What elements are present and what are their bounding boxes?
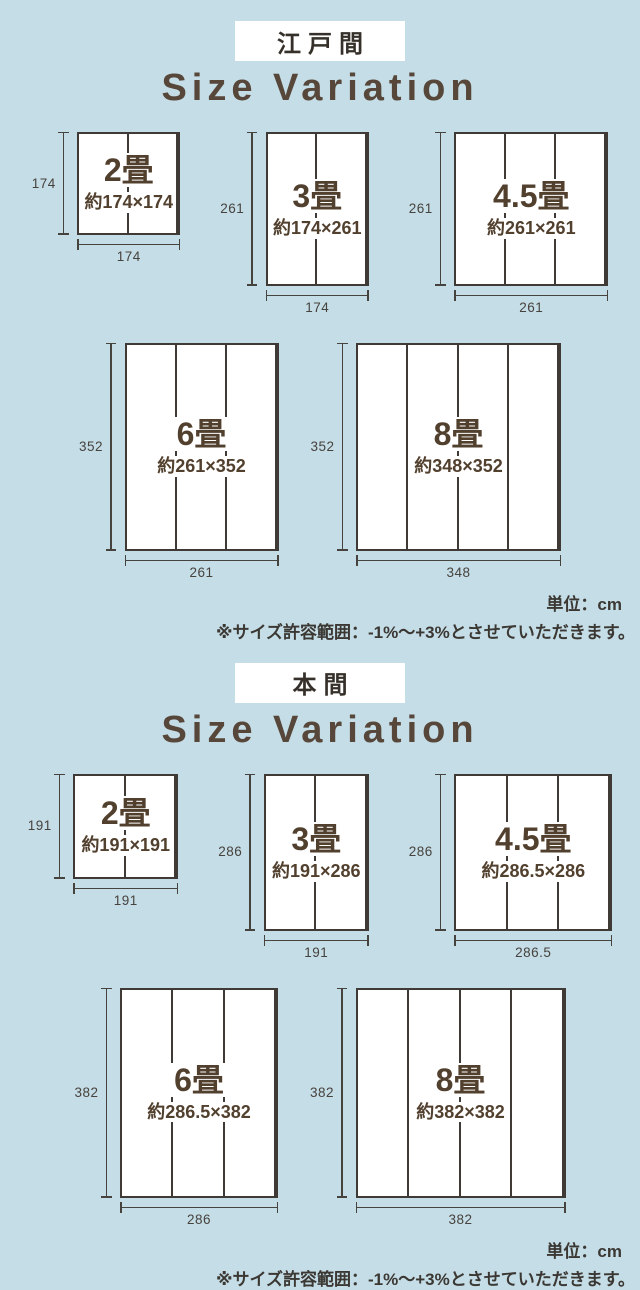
- figure-stack: 6畳約261×352261: [125, 343, 279, 580]
- size-row-large: 3526畳約261×3522613528畳約348×352348: [0, 343, 640, 580]
- size-row-large: 3826畳約286.5×3822863828畳約382×382382: [0, 988, 640, 1227]
- height-dimension: 352: [79, 343, 112, 551]
- height-dimension: 174: [32, 132, 65, 235]
- height-dimension: 286: [409, 774, 442, 931]
- height-dimension-label: 174: [32, 177, 56, 191]
- rug-rectangle: 4.5畳約261×261: [454, 132, 608, 286]
- rug-rectangle: 2畳約191×191: [73, 774, 178, 879]
- size-dimensions-text: 約382×382: [413, 1102, 508, 1123]
- size-name: 4.5畳: [490, 822, 577, 856]
- size-dimensions-text: 約286.5×286: [479, 861, 589, 882]
- tolerance-note: ※サイズ許容範囲：-1%～+3%とさせていただきます。: [0, 1265, 640, 1290]
- size-figure: 3828畳約382×382382: [310, 988, 566, 1227]
- width-dimension-label: 286.5: [515, 946, 551, 960]
- rug-rectangle: 3畳約174×261: [266, 132, 369, 286]
- height-dimension: 261: [220, 132, 253, 286]
- width-dimension-line: [454, 295, 608, 297]
- figure-stack: 8畳約348×352348: [356, 343, 561, 580]
- height-dimension-line: [110, 343, 112, 551]
- rug-labels: 6畳約261×352: [127, 345, 277, 549]
- height-dimension-label: 191: [28, 819, 52, 833]
- figure-stack: 4.5畳約261×261261: [454, 132, 608, 315]
- size-figure: 1742畳約174×174174: [32, 132, 181, 264]
- width-dimension-label: 174: [305, 301, 329, 315]
- size-figure: 3526畳約261×352261: [79, 343, 279, 580]
- size-name: 2畳: [96, 796, 156, 830]
- rug-labels: 3畳約191×286: [266, 776, 367, 929]
- width-dimension-label: 382: [449, 1213, 473, 1227]
- figure-stack: 2畳約174×174174: [77, 132, 180, 264]
- size-name: 8畳: [431, 1063, 491, 1097]
- height-dimension-line: [63, 132, 65, 235]
- height-dimension: 382: [310, 988, 343, 1198]
- size-figure: 1912畳約191×191191: [28, 774, 179, 908]
- height-dimension: 261: [409, 132, 442, 286]
- rug-rectangle: 6畳約286.5×382: [120, 988, 278, 1198]
- size-dimensions-text: 約261×352: [154, 456, 249, 477]
- height-dimension-line: [440, 132, 442, 286]
- width-dimension-label: 191: [304, 946, 328, 960]
- size-figure: 2863畳約191×286191: [218, 774, 369, 960]
- standard-tag-box: 本間: [235, 663, 405, 703]
- size-dimensions-text: 約174×174: [81, 192, 176, 213]
- width-dimension-label: 174: [117, 250, 141, 264]
- size-figure: 2864.5畳約286.5×286286.5: [409, 774, 613, 960]
- height-dimension-line: [251, 132, 253, 286]
- height-dimension-line: [440, 774, 442, 931]
- section-title: Size Variation: [0, 710, 640, 752]
- unit-note: 単位：cm: [0, 590, 640, 615]
- size-name: 3畳: [287, 179, 347, 213]
- rug-labels: 4.5畳約261×261: [456, 134, 606, 284]
- height-dimension: 191: [28, 774, 61, 879]
- unit-note: 単位：cm: [0, 1237, 640, 1262]
- size-row-small: 1742畳約174×1741742613畳約174×2611742614.5畳約…: [0, 132, 640, 315]
- height-dimension-label: 382: [310, 1086, 334, 1100]
- height-dimension-label: 286: [218, 845, 242, 859]
- rug-rectangle: 8畳約382×382: [356, 988, 566, 1198]
- rug-labels: 6畳約286.5×382: [122, 990, 276, 1196]
- width-dimension-line: [454, 940, 612, 942]
- size-name: 8畳: [429, 417, 489, 451]
- size-figure: 3826畳約286.5×382286: [74, 988, 278, 1227]
- section-honma: 本間 Size Variation 1912畳約191×1911912863畳約…: [0, 663, 640, 1290]
- height-dimension-label: 352: [311, 440, 335, 454]
- width-dimension-line: [264, 940, 369, 942]
- width-dimension-line: [120, 1207, 278, 1209]
- height-dimension-line: [341, 988, 343, 1198]
- size-figure: 2613畳約174×261174: [220, 132, 369, 315]
- figure-stack: 6畳約286.5×382286: [120, 988, 278, 1227]
- height-dimension: 352: [311, 343, 344, 551]
- section-title: Size Variation: [0, 68, 640, 110]
- standard-tag-label: 本間: [286, 665, 355, 700]
- size-dimensions-text: 約191×286: [269, 861, 364, 882]
- height-dimension-label: 261: [409, 202, 433, 216]
- width-dimension-line: [125, 560, 279, 562]
- figure-stack: 3畳約191×286191: [264, 774, 369, 960]
- height-dimension-line: [249, 774, 251, 931]
- figure-stack: 4.5畳約286.5×286286.5: [454, 774, 612, 960]
- height-dimension-label: 352: [79, 440, 103, 454]
- figure-stack: 2畳約191×191191: [73, 774, 178, 908]
- width-dimension-label: 261: [519, 301, 543, 315]
- size-figure: 2614.5畳約261×261261: [409, 132, 609, 315]
- width-dimension-label: 261: [189, 566, 213, 580]
- rug-labels: 8畳約348×352: [358, 345, 559, 549]
- size-dimensions-text: 約348×352: [411, 456, 506, 477]
- width-dimension-line: [356, 1207, 566, 1209]
- size-dimensions-text: 約174×261: [270, 218, 365, 239]
- height-dimension-label: 261: [220, 202, 244, 216]
- size-row-small: 1912畳約191×1911912863畳約191×2861912864.5畳約…: [0, 774, 640, 960]
- height-dimension-label: 286: [409, 845, 433, 859]
- figure-stack: 8畳約382×382382: [356, 988, 566, 1227]
- size-dimensions-text: 約261×261: [484, 218, 579, 239]
- rug-rectangle: 3畳約191×286: [264, 774, 369, 931]
- size-name: 2畳: [99, 153, 159, 187]
- size-name: 4.5畳: [488, 179, 575, 213]
- figure-stack: 3畳約174×261174: [266, 132, 369, 315]
- section-edoma: 江戸間 Size Variation 1742畳約174×1741742613畳…: [0, 21, 640, 643]
- size-chart-page: 江戸間 Size Variation 1742畳約174×1741742613畳…: [0, 0, 640, 1290]
- width-dimension-label: 191: [114, 894, 138, 908]
- width-dimension-line: [266, 295, 369, 297]
- width-dimension-line: [77, 244, 180, 246]
- height-dimension: 286: [218, 774, 251, 931]
- height-dimension: 382: [74, 988, 107, 1198]
- rug-labels: 4.5畳約286.5×286: [456, 776, 610, 929]
- size-figure: 3528畳約348×352348: [311, 343, 562, 580]
- rug-rectangle: 8畳約348×352: [356, 343, 561, 551]
- width-dimension-line: [73, 888, 178, 890]
- standard-tag-box: 江戸間: [235, 21, 405, 61]
- height-dimension-line: [106, 988, 108, 1198]
- width-dimension-label: 348: [447, 566, 471, 580]
- tolerance-note: ※サイズ許容範囲：-1%～+3%とさせていただきます。: [0, 618, 640, 643]
- rug-rectangle: 2畳約174×174: [77, 132, 180, 235]
- rug-labels: 8畳約382×382: [358, 990, 564, 1196]
- size-dimensions-text: 約191×191: [78, 835, 173, 856]
- size-name: 3畳: [286, 822, 346, 856]
- rug-rectangle: 4.5畳約286.5×286: [454, 774, 612, 931]
- rug-labels: 3畳約174×261: [268, 134, 367, 284]
- height-dimension-line: [59, 774, 61, 879]
- rug-rectangle: 6畳約261×352: [125, 343, 279, 551]
- rug-labels: 2畳約191×191: [75, 776, 176, 877]
- standard-tag-label: 江戸間: [270, 24, 370, 59]
- height-dimension-line: [342, 343, 344, 551]
- width-dimension-label: 286: [187, 1213, 211, 1227]
- size-name: 6畳: [172, 417, 232, 451]
- size-name: 6畳: [169, 1063, 229, 1097]
- size-dimensions-text: 約286.5×382: [144, 1102, 254, 1123]
- width-dimension-line: [356, 560, 561, 562]
- height-dimension-label: 382: [74, 1086, 98, 1100]
- rug-labels: 2畳約174×174: [79, 134, 178, 233]
